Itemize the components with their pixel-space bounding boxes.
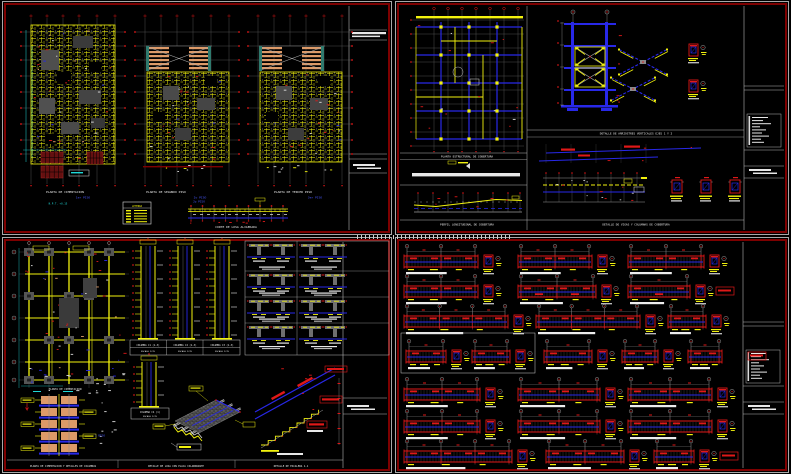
profile-title: PERFIL LONGITUDINAL DE COBERTURA xyxy=(440,223,494,227)
roof-plan-title: PLANTA ESTRUCTURAL DE COBERTURA xyxy=(441,155,494,159)
cad-geometry xyxy=(5,238,389,470)
brace-detail-title: DETALLE DE ARRIOSTRES VERTICALES EJES 1 … xyxy=(600,132,673,136)
sheet-foundation-details: PLANTA DE CIMENTACION COLUMNA C1 (1-3) E… xyxy=(2,237,392,473)
cad-geometry xyxy=(398,240,786,470)
schedule-level-label: 1 PISO xyxy=(95,434,105,438)
plan2-title: PLANTA DE SEGUNDO PISO xyxy=(146,190,186,194)
footer-title-3: DETALLE DE ESCALERA 1-1 xyxy=(274,464,309,468)
cad-geometry xyxy=(398,4,786,232)
footer-title-2: DETALLE DE LOSA CON PLACA COLABORANTE xyxy=(148,464,204,468)
sheet-gap-tick-marks xyxy=(357,235,513,239)
sheet-structural-elevations: PLANTA ESTRUCTURAL DE COBERTURA DETALLE … xyxy=(395,1,789,235)
floor-plans-drawing: PLANTA DE CIMENTACION 1er PISO N.P.T. +0… xyxy=(3,2,391,234)
plan3-level: 3er PISO xyxy=(308,196,323,200)
column4-label: COLUMNA C4 (1) xyxy=(140,411,160,414)
section-title: CORTE DE LOSA ALIGERADA xyxy=(215,225,257,229)
foundation-plan-title: PLANTA DE CIMENTACION xyxy=(49,387,82,391)
plan1-title: PLANTA DE CIMENTACION xyxy=(46,190,84,194)
legend-title: LEYENDA xyxy=(132,205,143,208)
plan3-title: PLANTA DE TERCER PISO xyxy=(274,190,312,194)
beam-details-drawing xyxy=(396,238,788,472)
section-level: 2o PISO xyxy=(193,200,205,204)
roof-beams-title: DETALLE DE VIGAS Y COLUMNAS DE COBERTURA xyxy=(602,223,670,227)
structural-drawing: PLANTA ESTRUCTURAL DE COBERTURA DETALLE … xyxy=(396,2,788,234)
footer-title-1: PLANTA DE CIMENTACION Y DETALLES DE COLU… xyxy=(30,464,97,468)
column2-label: COLUMNA C2 (1-3) xyxy=(173,344,196,347)
column4-scale: ESCALA 1/25 xyxy=(143,415,158,418)
plan1-level: 1er PISO xyxy=(76,196,91,200)
column3-label: COLUMNA C3 (1-3) xyxy=(210,344,233,347)
column3-scale: ESCALA 1/25 xyxy=(215,350,230,353)
plan1-note: N.P.T. +0.15 xyxy=(49,202,68,206)
cad-workspace: PLANTA DE CIMENTACION 1er PISO N.P.T. +0… xyxy=(0,0,791,474)
sheet-beam-details xyxy=(395,237,789,473)
column1-label: COLUMNA C1 (1-3) xyxy=(136,344,159,347)
foundation-drawing: PLANTA DE CIMENTACION COLUMNA C1 (1-3) E… xyxy=(3,238,391,472)
column2-scale: ESCALA 1/25 xyxy=(178,350,193,353)
column1-scale: ESCALA 1/25 xyxy=(141,350,156,353)
sheet-floor-plans: PLANTA DE CIMENTACION 1er PISO N.P.T. +0… xyxy=(2,1,392,235)
